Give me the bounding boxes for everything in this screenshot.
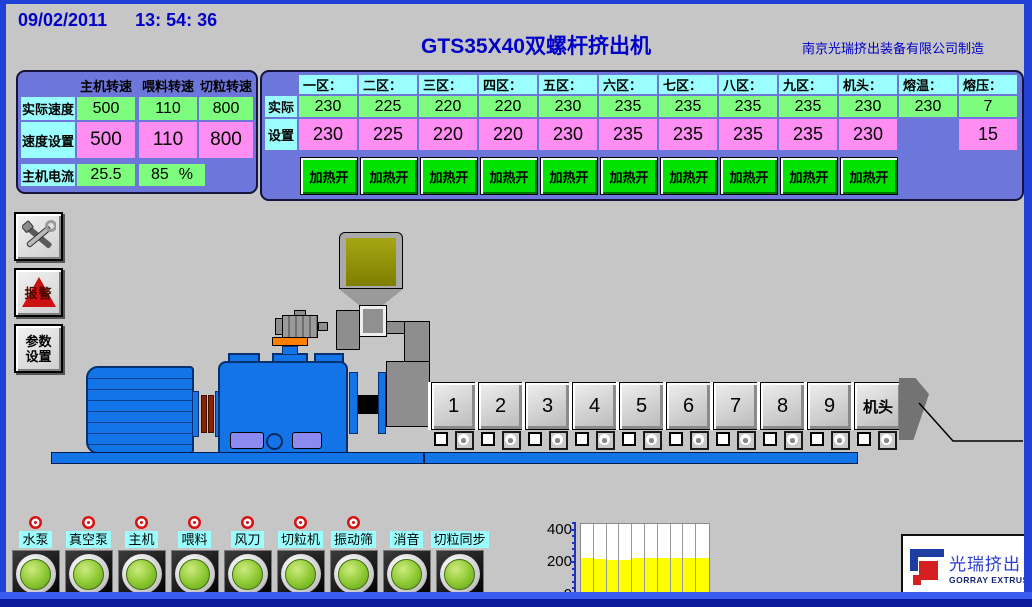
zone-fan-icon-0 xyxy=(455,431,474,450)
speed-col-header-main: 主机转速 xyxy=(77,75,135,95)
zone-block-5: 5 xyxy=(619,382,664,430)
indicator-ring xyxy=(16,554,56,592)
chart-tick xyxy=(572,548,576,550)
chart-ytick-label-400: 400 xyxy=(547,521,572,538)
chart-bar-fill xyxy=(632,558,644,592)
zone-block-3: 3 xyxy=(525,382,570,430)
temp-actual-9: 230 xyxy=(839,96,897,117)
time-text: 13: 54: 36 xyxy=(135,10,217,30)
alarm-dot-icon xyxy=(188,516,201,529)
main-current-label: 主机电流 xyxy=(21,164,75,186)
alarm-dot-icon xyxy=(241,516,254,529)
indicator-lamp-green xyxy=(338,559,369,590)
indicator-4: 风刀 xyxy=(222,516,273,592)
indicator-button-3[interactable] xyxy=(171,550,219,592)
temp-set-0[interactable]: 230 xyxy=(299,119,357,150)
indicator-button-5[interactable] xyxy=(277,550,325,592)
temp-set-5[interactable]: 235 xyxy=(599,119,657,150)
parameter-settings-button[interactable]: 参数 设置 xyxy=(14,324,63,373)
set-speed-feed[interactable]: 110 xyxy=(139,122,197,158)
indicator-label: 主机 xyxy=(125,531,157,548)
hopper-material xyxy=(346,238,396,286)
indicator-ring xyxy=(122,554,162,592)
main-current-value: 25.5 xyxy=(77,164,135,186)
temp-actual-2: 220 xyxy=(419,96,477,117)
alarm-dot-icon xyxy=(347,516,360,529)
zone-fan-icon-7 xyxy=(784,431,803,450)
chart-bar-fill xyxy=(671,558,683,592)
heat-button-4[interactable]: 加热开 xyxy=(540,157,598,195)
feed-housing xyxy=(336,310,360,350)
page-title: GTS35X40双螺杆挤出机 xyxy=(306,30,766,60)
heat-button-9[interactable]: 加热开 xyxy=(840,157,898,195)
speed-col-header-pellet: 切粒转速 xyxy=(199,75,253,95)
barrel-feed-section xyxy=(386,361,430,427)
set-speed-row-label: 速度设置 xyxy=(21,122,75,158)
chart-bar-1 xyxy=(594,524,607,592)
indicator-label: 切粒同步 xyxy=(431,531,489,548)
temp-col-header-0: 一区： xyxy=(299,75,357,94)
heat-button-1[interactable]: 加热开 xyxy=(360,157,418,195)
zone-fan-icon-3 xyxy=(596,431,615,450)
heat-button-5[interactable]: 加热开 xyxy=(600,157,658,195)
actual-speed-main: 500 xyxy=(77,97,135,120)
main-load-unit: % xyxy=(179,166,193,184)
chart-bar-fill xyxy=(658,558,670,592)
temp-col-header-7: 八区： xyxy=(719,75,777,94)
zone-fan-icon-6 xyxy=(737,431,756,450)
zone-fan-icon-9 xyxy=(878,431,897,450)
temp-actual-3: 220 xyxy=(479,96,537,117)
zone-sensor-box-4 xyxy=(622,432,636,446)
logo-text: 光瑞挤出 GORRAY EXTRUSION xyxy=(949,550,1024,585)
indicator-ring xyxy=(440,554,480,592)
indicator-ring xyxy=(281,554,321,592)
actual-speed-pellet: 800 xyxy=(199,97,253,120)
chart-bar-9 xyxy=(696,524,709,592)
zone-sensor-box-6 xyxy=(716,432,730,446)
indicator-8: 切粒同步 xyxy=(434,516,485,592)
indicator-label: 水泵 xyxy=(19,531,51,548)
alarm-button-label: 报警 xyxy=(24,283,52,302)
zone-block-2: 2 xyxy=(478,382,523,430)
chart-bar-fill xyxy=(619,560,631,592)
gearbox-window xyxy=(292,432,322,449)
indicator-button-0[interactable] xyxy=(12,550,60,592)
chart-bar-6 xyxy=(658,524,671,592)
indicator-ring xyxy=(175,554,215,592)
temp-actual-5: 235 xyxy=(599,96,657,117)
set-speed-main[interactable]: 500 xyxy=(77,122,135,158)
temperature-bar-chart: 4002000 xyxy=(534,519,724,592)
chart-bar-0 xyxy=(581,524,594,592)
indicator-lamp-green xyxy=(126,559,157,590)
indicator-ring xyxy=(228,554,268,592)
indicator-label: 喂料 xyxy=(178,531,210,548)
indicator-button-7[interactable] xyxy=(383,550,431,592)
zone-fan-icon-5 xyxy=(690,431,709,450)
indicator-lamp-green xyxy=(20,559,51,590)
base-divider xyxy=(423,452,425,464)
zone-fan-icon-4 xyxy=(643,431,662,450)
alarm-dot-icon xyxy=(29,516,42,529)
indicator-0: 水泵 xyxy=(10,516,61,592)
alarm-dot-icon xyxy=(294,516,307,529)
zone-block-1: 1 xyxy=(431,382,476,430)
indicator-lamp-green xyxy=(285,559,316,590)
chart-bar-7 xyxy=(671,524,684,592)
chart-bar-2 xyxy=(607,524,620,592)
chart-tick xyxy=(572,581,576,583)
temp-col-header-11: 熔压： xyxy=(959,75,1017,94)
indicator-ring xyxy=(387,554,427,592)
zone-sensor-box-3 xyxy=(575,432,589,446)
barrel-flange xyxy=(349,372,358,434)
zone-block-4: 4 xyxy=(572,382,617,430)
alarm-dot-icon xyxy=(82,516,95,529)
chart-bar-4 xyxy=(632,524,645,592)
machine-base xyxy=(51,452,858,464)
alarm-dot-icon xyxy=(135,516,148,529)
indicator-7: 消音 xyxy=(381,516,432,592)
logo-english-name: GORRAY EXTRUSION xyxy=(949,575,1024,585)
hmi-screen: 09/02/201113: 54: 36 GTS35X40双螺杆挤出机 南京光瑞… xyxy=(6,4,1024,592)
heat-button-7[interactable]: 加热开 xyxy=(720,157,778,195)
window-frame: 09/02/201113: 54: 36 GTS35X40双螺杆挤出机 南京光瑞… xyxy=(0,0,1032,607)
heat-button-2[interactable]: 加热开 xyxy=(420,157,478,195)
temp-actual-4: 230 xyxy=(539,96,597,117)
chart-bar-fill xyxy=(696,558,709,592)
zone-fan-icon-2 xyxy=(549,431,568,450)
window-bottom-border xyxy=(0,592,1032,607)
zone-sensor-box-7 xyxy=(763,432,777,446)
feeder-pedestal xyxy=(282,346,298,355)
zone-fan-icon-1 xyxy=(502,431,521,450)
chart-tick xyxy=(572,568,576,570)
chart-plot-area xyxy=(580,523,710,592)
temp-actual-10: 230 xyxy=(899,96,957,117)
indicator-button-6[interactable] xyxy=(330,550,378,592)
temp-actual-0: 230 xyxy=(299,96,357,117)
chart-tick xyxy=(572,587,576,589)
indicator-lamp-green xyxy=(444,559,475,590)
coupling-element xyxy=(208,395,214,433)
heat-button-6[interactable]: 加热开 xyxy=(660,157,718,195)
extrudate-strand xyxy=(911,397,1024,447)
chart-bar-3 xyxy=(619,524,632,592)
chart-tick xyxy=(570,561,576,563)
logo-chinese-name: 光瑞挤出 xyxy=(949,550,1024,575)
heat-button-3[interactable]: 加热开 xyxy=(480,157,538,195)
heat-button-0[interactable]: 加热开 xyxy=(300,157,358,195)
temp-actual-11: 7 xyxy=(959,96,1017,117)
indicator-label: 消音 xyxy=(390,531,422,548)
date-text: 09/02/2011 xyxy=(18,10,107,30)
manufacturer-text: 南京光瑞挤出装备有限公司制造 xyxy=(768,38,1018,57)
chart-bar-8 xyxy=(683,524,696,592)
temp-col-header-10: 熔温： xyxy=(899,75,957,94)
temp-set-3[interactable]: 220 xyxy=(479,119,537,150)
indicator-lamp-green xyxy=(232,559,263,590)
coupling-element xyxy=(201,395,207,433)
chart-bar-fill xyxy=(607,560,619,592)
set-speed-pellet[interactable]: 800 xyxy=(199,122,253,158)
indicator-label: 风刀 xyxy=(231,531,263,548)
main-load-value: 85 xyxy=(151,166,169,184)
indicator-label: 振动筛 xyxy=(331,531,376,548)
chart-bar-fill xyxy=(645,558,657,592)
zone-sensor-box-1 xyxy=(481,432,495,446)
feeder-shaft xyxy=(318,322,328,331)
speed-col-header-feed: 喂料转速 xyxy=(139,75,197,95)
chart-bar-fill xyxy=(683,558,695,592)
temp-set-6[interactable]: 235 xyxy=(659,119,717,150)
indicator-button-8[interactable] xyxy=(436,550,484,592)
temp-set-row-label: 设置 xyxy=(265,119,297,150)
chart-tick xyxy=(572,555,576,557)
parameter-settings-label: 参数 设置 xyxy=(25,334,51,364)
indicator-lamp-green xyxy=(391,559,422,590)
feeder-base xyxy=(272,337,308,346)
indicator-ring xyxy=(334,554,374,592)
temp-col-header-9: 机头： xyxy=(839,75,897,94)
actual-speed-feed: 110 xyxy=(139,97,197,120)
chart-ytick-label-200: 200 xyxy=(547,553,572,570)
zone-block-8: 8 xyxy=(760,382,805,430)
chart-bar-5 xyxy=(645,524,658,592)
maintenance-button[interactable] xyxy=(14,212,63,261)
indicator-button-4[interactable] xyxy=(224,550,272,592)
indicator-button-2[interactable] xyxy=(118,550,166,592)
temp-col-header-2: 三区： xyxy=(419,75,477,94)
main-load-cell: 85 % xyxy=(139,164,205,186)
gearbox-window xyxy=(230,432,264,449)
indicator-button-1[interactable] xyxy=(65,550,113,592)
gorray-logo-icon xyxy=(910,549,944,585)
temp-set-8[interactable]: 235 xyxy=(779,119,837,150)
temp-col-header-8: 九区： xyxy=(779,75,837,94)
temp-set-9[interactable]: 230 xyxy=(839,119,897,150)
zone-block-9: 9 xyxy=(807,382,852,430)
drive-shaft xyxy=(358,395,378,414)
chart-bar-fill xyxy=(581,558,593,592)
zone-sensor-box-8 xyxy=(810,432,824,446)
zone-fan-icon-8 xyxy=(831,431,850,450)
indicator-5: 切粒机 xyxy=(275,516,326,592)
temp-actual-8: 235 xyxy=(779,96,837,117)
temp-col-header-4: 五区： xyxy=(539,75,597,94)
temp-actual-row-label: 实际 xyxy=(265,96,297,117)
barrel-flange xyxy=(378,372,386,434)
main-motor-graphic xyxy=(86,366,194,454)
indicator-3: 喂料 xyxy=(169,516,220,592)
temp-set-1[interactable]: 225 xyxy=(359,119,417,150)
temp-col-header-3: 四区： xyxy=(479,75,537,94)
feeder-motor-graphic xyxy=(282,315,318,338)
vent-column xyxy=(404,321,430,365)
temp-col-header-1: 二区： xyxy=(359,75,417,94)
zone-block-7: 7 xyxy=(713,382,758,430)
temp-col-header-6: 七区： xyxy=(659,75,717,94)
temperature-panel: 实际 设置 一区：230230加热开二区：225225加热开三区：220220加… xyxy=(260,70,1024,201)
indicator-2: 主机 xyxy=(116,516,167,592)
coupling-flange-left xyxy=(192,391,199,437)
hopper-graphic xyxy=(339,232,403,289)
zone-sensor-box-5 xyxy=(669,432,683,446)
temp-set-11[interactable]: 15 xyxy=(959,119,1017,150)
temp-set-2[interactable]: 220 xyxy=(419,119,477,150)
chart-tick xyxy=(572,522,576,524)
speed-panel: 主机转速 喂料转速 切粒转速 实际速度 500 110 800 速度设置 500… xyxy=(16,70,258,194)
datetime: 09/02/201113: 54: 36 xyxy=(18,10,245,31)
chart-tick xyxy=(572,542,576,544)
chart-tick xyxy=(570,529,576,531)
actual-speed-row-label: 实际速度 xyxy=(21,97,75,120)
hopper-throat xyxy=(360,306,386,336)
indicator-label: 切粒机 xyxy=(278,531,323,548)
indicator-lamp-green xyxy=(179,559,210,590)
temp-actual-6: 235 xyxy=(659,96,717,117)
alarm-button[interactable]: 报警 xyxy=(14,268,63,317)
indicator-6: 振动筛 xyxy=(328,516,379,592)
chart-tick xyxy=(572,535,576,537)
indicator-lamp-green xyxy=(73,559,104,590)
zone-block-6: 6 xyxy=(666,382,711,430)
temp-actual-1: 225 xyxy=(359,96,417,117)
chart-bar-fill xyxy=(594,559,606,592)
feeder-knob xyxy=(294,310,306,316)
chart-tick xyxy=(572,574,576,576)
temp-actual-7: 235 xyxy=(719,96,777,117)
zone-sensor-box-2 xyxy=(528,432,542,446)
zone-sensor-box-0 xyxy=(434,432,448,446)
indicator-1: 真空泵 xyxy=(63,516,114,592)
temp-col-header-5: 六区： xyxy=(599,75,657,94)
company-logo: 光瑞挤出 GORRAY EXTRUSION xyxy=(901,534,1024,592)
die-head-block: 机头 xyxy=(854,382,902,430)
heat-button-8[interactable]: 加热开 xyxy=(780,157,838,195)
indicator-label: 真空泵 xyxy=(66,531,111,548)
tools-icon xyxy=(22,220,56,254)
zone-sensor-box-9 xyxy=(857,432,871,446)
indicator-ring xyxy=(69,554,109,592)
temp-set-7[interactable]: 235 xyxy=(719,119,777,150)
temp-set-4[interactable]: 230 xyxy=(539,119,597,150)
gearbox-port xyxy=(266,433,283,450)
